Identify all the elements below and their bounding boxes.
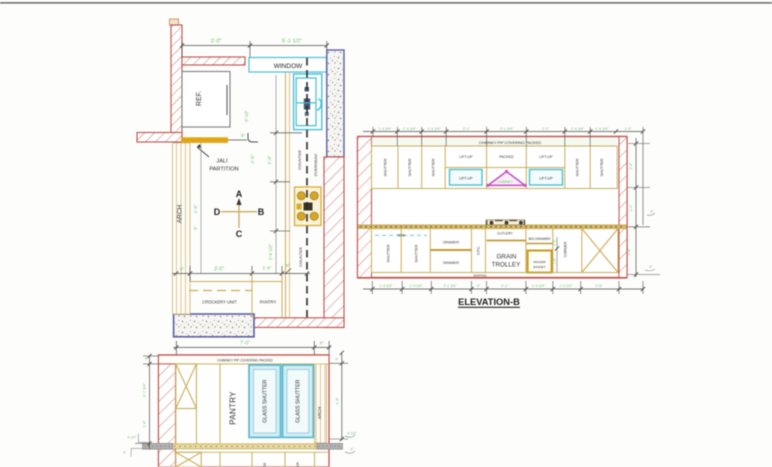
- svg-text:GLASS SHUTTER: GLASS SHUTTER: [296, 379, 302, 422]
- svg-text:ARCH: ARCH: [177, 204, 184, 223]
- svg-text:2'-1 3/4": 2'-1 3/4": [443, 284, 457, 288]
- svg-text:1'-4 3/4": 1'-4 3/4": [378, 127, 392, 131]
- svg-text:TROLLEY: TROLLEY: [492, 262, 521, 269]
- svg-text:5'-10": 5'-10": [244, 110, 249, 122]
- svg-text:2'-6": 2'-6": [250, 154, 255, 163]
- svg-text:9": 9": [286, 263, 291, 268]
- svg-text:CORNER: CORNER: [564, 241, 568, 257]
- svg-text:2'-1": 2'-1": [542, 127, 550, 131]
- svg-text:A: A: [236, 189, 243, 199]
- svg-text:2'-1 3/4": 2'-1 3/4": [500, 127, 514, 131]
- svg-text:PARTITION: PARTITION: [209, 167, 238, 173]
- svg-text:2'-7 3/4": 2'-7 3/4": [143, 382, 147, 397]
- svg-text:1'-0": 1'-0": [624, 127, 632, 131]
- svg-text:1'-4 3/4": 1'-4 3/4": [427, 127, 441, 131]
- svg-text:4'-9": 4'-9": [336, 397, 340, 405]
- svg-text:CUTLERY: CUTLERY: [497, 232, 514, 236]
- svg-text:SHUTTER: SHUTTER: [384, 158, 388, 176]
- svg-text:SINK: SINK: [398, 233, 407, 237]
- svg-text:2'-0": 2'-0": [267, 155, 272, 164]
- svg-text:4 1/2": 4 1/2": [347, 432, 357, 436]
- svg-text:9": 9": [241, 133, 246, 138]
- svg-text:1'-9": 1'-9": [263, 266, 272, 271]
- svg-text:4 1/2": 4 1/2": [127, 436, 137, 440]
- svg-text:SHUTTER: SHUTTER: [576, 158, 580, 176]
- svg-text:PANTRY: PANTRY: [260, 300, 277, 305]
- svg-text:2'-6 1/2": 2'-6 1/2": [268, 243, 273, 260]
- svg-text:SHUTTER: SHUTTER: [600, 158, 604, 176]
- svg-text:SHUTTER: SHUTTER: [432, 158, 436, 176]
- svg-text:ELEVATION-B: ELEVATION-B: [458, 297, 520, 307]
- svg-text:SHUTTER: SHUTTER: [387, 244, 391, 262]
- svg-text:D: D: [214, 207, 221, 217]
- svg-text:COUNTER: COUNTER: [298, 247, 303, 267]
- svg-text:LIFT-UP: LIFT-UP: [539, 177, 553, 181]
- svg-text:1'-4 3/4": 1'-4 3/4": [532, 284, 546, 288]
- svg-text:9": 9": [193, 226, 198, 231]
- svg-text:LIFT-UP: LIFT-UP: [459, 177, 473, 181]
- svg-text:COUNTER: COUNTER: [297, 150, 302, 170]
- svg-text:CROCKERY UNIT: CROCKERY UNIT: [202, 300, 237, 305]
- svg-text:REF.: REF.: [196, 91, 203, 106]
- svg-text:SHUTTER: SHUTTER: [296, 462, 300, 467]
- svg-text:2'-6": 2'-6": [629, 162, 633, 170]
- svg-text:B: B: [258, 207, 265, 217]
- svg-text:OVERHEAD: OVERHEAD: [313, 154, 318, 177]
- svg-text:SHUTTER: SHUTTER: [408, 158, 412, 176]
- svg-text:3'-0": 3'-0": [214, 267, 224, 273]
- svg-text:1'-4 3/4": 1'-4 3/4": [409, 284, 423, 288]
- svg-text:1'-6": 1'-6": [553, 238, 557, 246]
- svg-text:2'-1": 2'-1": [501, 284, 509, 288]
- svg-text:WICKER: WICKER: [533, 260, 546, 264]
- svg-text:9": 9": [320, 341, 324, 346]
- svg-text:DRAWER: DRAWER: [443, 261, 459, 265]
- svg-text:GRAIN: GRAIN: [497, 254, 517, 261]
- svg-text:1'-3 3/4": 1'-3 3/4": [559, 284, 573, 288]
- svg-text:3'-0": 3'-0": [211, 39, 222, 45]
- svg-text:9": 9": [180, 267, 185, 272]
- svg-text:CHIMNEY PIP COVERING PACKED: CHIMNEY PIP COVERING PACKED: [479, 141, 541, 145]
- svg-text:PACKED: PACKED: [499, 155, 514, 159]
- svg-text:BIG DRAWER: BIG DRAWER: [529, 237, 551, 241]
- svg-text:PANTRY: PANTRY: [229, 391, 238, 425]
- svg-text:1'-4 3/4": 1'-4 3/4": [571, 127, 585, 131]
- svg-text:1'-4 3/4": 1'-4 3/4": [379, 284, 393, 288]
- svg-text:1'-6": 1'-6": [143, 420, 147, 428]
- svg-text:CHIMNEY: CHIMNEY: [497, 180, 513, 184]
- svg-text:SKIRTING: SKIRTING: [473, 273, 487, 277]
- svg-text:LIFT-UP: LIFT-UP: [539, 155, 553, 159]
- svg-text:C: C: [236, 229, 243, 239]
- svg-text:DRAWER: DRAWER: [443, 241, 459, 245]
- svg-text:7'-0": 7'-0": [240, 341, 250, 347]
- svg-text:1'-9": 1'-9": [193, 204, 198, 213]
- svg-text:5'-1 1/2": 5'-1 1/2": [282, 39, 302, 45]
- svg-text:1'-4 3/4": 1'-4 3/4": [595, 127, 609, 131]
- svg-text:2'-6": 2'-6": [627, 247, 631, 255]
- svg-text:BASKET: BASKET: [533, 265, 545, 269]
- svg-text:GLASS SHUTTER: GLASS SHUTTER: [263, 379, 269, 422]
- svg-text:CHIMNEY PIP COVERING PACKED: CHIMNEY PIP COVERING PACKED: [217, 359, 273, 363]
- svg-text:1'-4": 1'-4": [629, 204, 633, 212]
- svg-text:SHUTTER: SHUTTER: [415, 244, 419, 262]
- svg-text:1'-4 3/4": 1'-4 3/4": [403, 127, 417, 131]
- svg-text:DRAWER: DRAWER: [263, 462, 267, 467]
- svg-text:1'-6": 1'-6": [553, 257, 557, 265]
- svg-text:LIFT-UP: LIFT-UP: [459, 155, 473, 159]
- svg-text:2'-6": 2'-6": [595, 284, 603, 288]
- svg-text:ARCH: ARCH: [317, 407, 322, 419]
- svg-text:S.P.C.: S.P.C.: [476, 246, 480, 255]
- svg-text:JALI: JALI: [216, 159, 228, 165]
- svg-text:WINDOW: WINDOW: [274, 63, 303, 70]
- svg-text:2'-1": 2'-1": [463, 127, 471, 131]
